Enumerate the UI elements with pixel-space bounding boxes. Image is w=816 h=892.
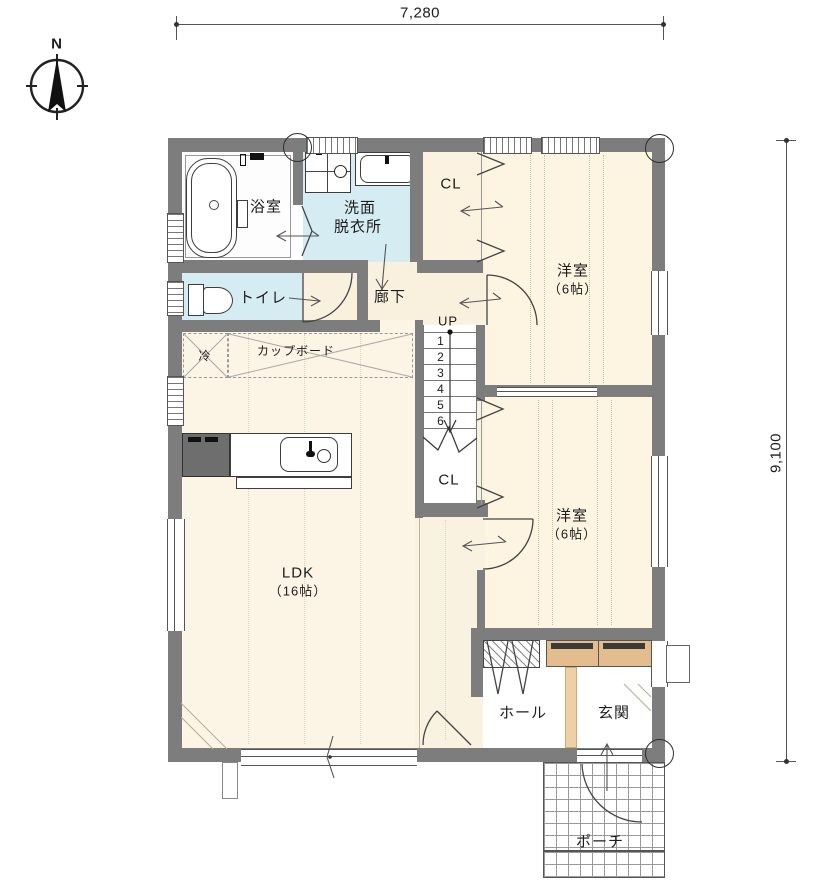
floor-joint bbox=[360, 334, 361, 744]
closet-top-floor bbox=[415, 152, 485, 273]
room-label-toilet: トイレ bbox=[239, 291, 287, 306]
sink-drain bbox=[317, 449, 331, 463]
stair-tread bbox=[423, 364, 477, 365]
stair-tread bbox=[423, 348, 477, 349]
wall-kitchen-north bbox=[168, 320, 380, 332]
bedroom-divider-sliding-door bbox=[497, 387, 597, 397]
window-bedroom1-right bbox=[651, 271, 668, 335]
dim-dot bbox=[784, 138, 789, 143]
wall-corridor-north-east bbox=[417, 260, 483, 273]
window-midline bbox=[658, 456, 659, 567]
washer-pan-cross-v bbox=[327, 152, 328, 193]
label-cupboard: カップボード bbox=[257, 345, 335, 357]
sliding-door-line bbox=[497, 391, 597, 392]
shoe-cabinet-divider bbox=[598, 640, 599, 667]
window-kitchen-left bbox=[167, 376, 184, 426]
compass-icon bbox=[26, 48, 90, 122]
stair-number: 5 bbox=[437, 399, 445, 411]
wall-washroom-closet bbox=[410, 152, 423, 262]
window-bedroom1-top-1 bbox=[483, 137, 532, 154]
dim-height-label: 9,100 bbox=[769, 433, 784, 473]
bath-shelf bbox=[237, 200, 248, 228]
room-label-closet-top: CL bbox=[440, 177, 461, 192]
wall-bath-south bbox=[168, 260, 368, 273]
compass-north-label: N bbox=[51, 37, 63, 52]
bath-faucet-icon bbox=[240, 154, 246, 166]
window-washroom-top bbox=[306, 137, 358, 154]
stair-number: 2 bbox=[437, 351, 445, 363]
room-label-bedroom1-1: 洋室 bbox=[557, 264, 589, 279]
door-midline bbox=[577, 755, 642, 756]
window-entrance-outer-box bbox=[666, 645, 690, 683]
window-ldk-bottom bbox=[241, 749, 417, 766]
floor-joint bbox=[248, 334, 249, 744]
wall-stairs-west bbox=[415, 320, 423, 518]
window-midline bbox=[241, 756, 417, 757]
dim-dot bbox=[784, 759, 789, 764]
window-toilet-left bbox=[167, 281, 184, 316]
room-label-bedroom2-1: 洋室 bbox=[556, 509, 588, 524]
toilet-bowl bbox=[203, 287, 233, 314]
stair-number: 6 bbox=[437, 415, 445, 427]
room-label-bedroom2-2: （6帖） bbox=[547, 528, 597, 541]
ldk-floor bbox=[182, 320, 415, 750]
dim-line-right bbox=[786, 140, 787, 762]
wall-bedroom2-west bbox=[477, 570, 485, 628]
dim-dot bbox=[174, 22, 179, 27]
stair-tread bbox=[423, 412, 477, 413]
post-marker bbox=[645, 739, 674, 768]
dim-tick bbox=[663, 16, 664, 40]
shoe-closet bbox=[483, 640, 540, 668]
wall-entrance-north bbox=[471, 628, 665, 640]
stair-tread bbox=[423, 332, 477, 333]
window-bedroom2-right bbox=[651, 456, 668, 567]
window-midline bbox=[658, 271, 659, 335]
stove-burner bbox=[188, 437, 201, 442]
stair-number: 3 bbox=[437, 367, 445, 379]
shoe-cabinet-shelf bbox=[551, 643, 593, 649]
wall-closet-mid-south bbox=[415, 503, 488, 517]
window-midline bbox=[174, 519, 175, 631]
entrance-step bbox=[565, 667, 577, 748]
outdoor-pillar bbox=[222, 762, 238, 799]
counter-front bbox=[236, 477, 352, 489]
washer-drain bbox=[334, 165, 347, 178]
porch-step bbox=[543, 851, 665, 878]
bathtub-drain bbox=[209, 200, 219, 210]
room-label-hallway: 廊下 bbox=[374, 290, 406, 305]
stair-tread bbox=[423, 380, 477, 381]
floor-joint bbox=[552, 400, 553, 625]
room-label-porch: ポーチ bbox=[576, 835, 624, 850]
floor-joint bbox=[611, 400, 612, 625]
stair-tread bbox=[423, 428, 477, 429]
dim-dot bbox=[661, 22, 666, 27]
window-bathroom-left bbox=[167, 213, 184, 263]
window-ldk-left bbox=[167, 519, 185, 631]
stair-number: 1 bbox=[437, 335, 445, 347]
stove-burner bbox=[205, 437, 218, 442]
dim-width-label: 7,280 bbox=[400, 6, 440, 21]
dim-line-top bbox=[176, 24, 663, 25]
window-bedroom1-top-2 bbox=[541, 137, 600, 154]
room-label-ldk-1: LDK bbox=[282, 566, 314, 581]
stair-tread bbox=[423, 396, 477, 397]
sink-faucet-icon bbox=[306, 451, 315, 457]
room-label-washroom-1: 洗面 bbox=[344, 201, 376, 216]
room-label-bedroom1-2: （6帖） bbox=[548, 283, 598, 296]
vanity-faucet-icon bbox=[385, 156, 389, 164]
post-marker bbox=[283, 133, 312, 162]
stairs-up-label: UP bbox=[438, 315, 458, 328]
floor-joint bbox=[445, 520, 446, 740]
floor-joint bbox=[544, 155, 545, 383]
dim-tick bbox=[176, 16, 177, 40]
room-label-closet-mid: CL bbox=[438, 473, 459, 488]
room-label-entrance: 玄関 bbox=[598, 706, 630, 721]
label-fridge: 冷 bbox=[198, 350, 211, 362]
wall-hall-west bbox=[471, 628, 483, 697]
room-label-bathroom: 浴室 bbox=[250, 200, 282, 215]
room-label-hall: ホール bbox=[499, 706, 547, 721]
room-label-washroom-2: 脱衣所 bbox=[334, 220, 382, 235]
floor-joint bbox=[530, 155, 531, 383]
floor-joint bbox=[603, 155, 604, 383]
stair-number: 4 bbox=[437, 383, 445, 395]
shoe-cabinet-shelf bbox=[603, 643, 645, 649]
partition-line bbox=[419, 517, 420, 748]
floor-joint bbox=[538, 400, 539, 625]
bath-shower-icon bbox=[250, 153, 264, 160]
floor-joint bbox=[597, 400, 598, 625]
closet-mid-track bbox=[481, 398, 482, 506]
toilet-tank bbox=[188, 284, 204, 316]
post-marker bbox=[645, 134, 674, 163]
floor-plan: N 7,280 9,100 浴室 洗面 脱衣所 トイレ 廊下 CL 洋室 （6帖… bbox=[0, 0, 816, 892]
room-label-ldk-2: （16帖） bbox=[269, 585, 327, 598]
floor-joint bbox=[304, 334, 305, 744]
closet-top-track bbox=[481, 152, 482, 262]
floor-joint bbox=[589, 155, 590, 383]
